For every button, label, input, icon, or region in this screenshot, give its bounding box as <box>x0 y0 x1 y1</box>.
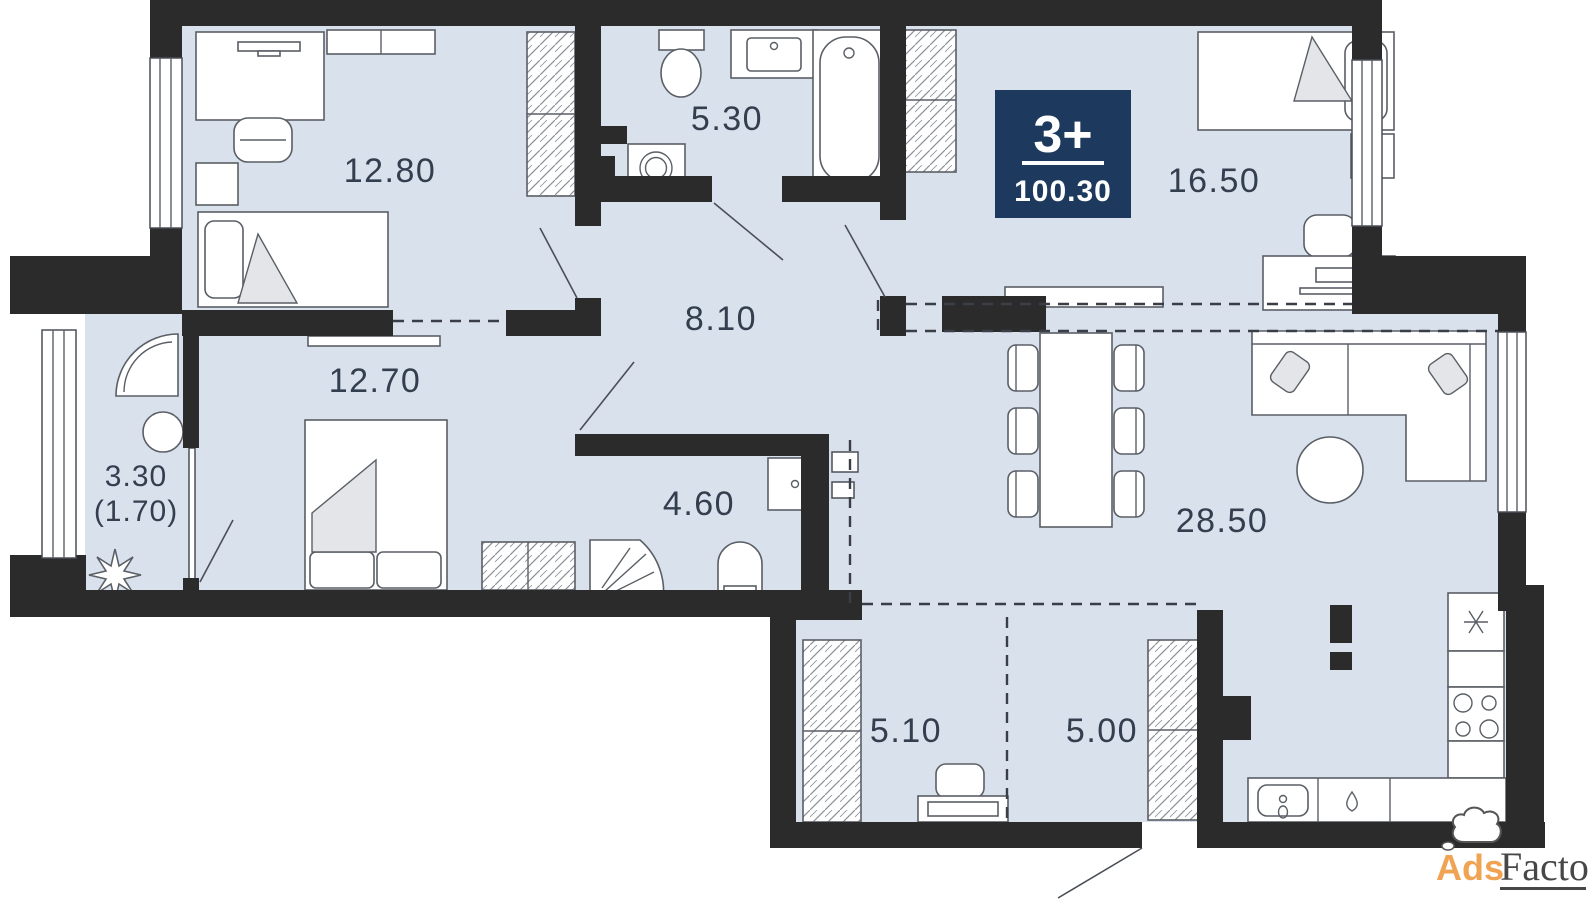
room-area-label: 3.30 <box>105 460 167 493</box>
shelf-icon <box>327 30 435 54</box>
kitchen-cabinet-icon <box>1448 651 1504 687</box>
wardrobe-icon <box>900 30 956 172</box>
nightstand-icon <box>196 163 238 205</box>
bathtub-icon <box>813 30 886 189</box>
room-area-label: 28.50 <box>1176 502 1269 540</box>
room-area-label: 4.60 <box>663 485 735 523</box>
kitchen-cabinet-icon <box>1448 741 1504 778</box>
cabinet-door-icon <box>768 458 802 510</box>
wardrobe-icon <box>482 542 575 590</box>
single-bed-icon <box>198 212 388 307</box>
wardrobe-icon <box>1148 640 1198 820</box>
stove-icon <box>1448 687 1504 741</box>
wardrobe-icon <box>803 640 861 822</box>
room-area-label: 12.80 <box>344 152 437 190</box>
sink-icon <box>731 30 817 78</box>
glass-door-icon <box>189 448 195 580</box>
room-area-label: 5.10 <box>870 712 942 750</box>
room-area-label: 8.10 <box>685 300 757 338</box>
dining-table-icon <box>1008 333 1144 527</box>
watermark-underline <box>1500 887 1586 890</box>
toilet-icon <box>659 30 704 97</box>
watermark-brand-right: Factory <box>1500 844 1589 889</box>
door-swing-line <box>1058 848 1142 898</box>
coffee-table-icon <box>1297 437 1363 503</box>
fridge-icon <box>1448 593 1504 651</box>
toilet-icon <box>718 542 762 598</box>
room-area-label: 16.50 <box>1168 162 1261 200</box>
window-icon <box>1352 60 1382 226</box>
badge-total-area: 100.30 <box>1014 175 1112 208</box>
room-area-label: 12.70 <box>329 362 422 400</box>
window-icon <box>42 330 76 558</box>
badge-rooms-count: 3+ <box>1033 106 1092 164</box>
wardrobe-icon <box>527 32 575 196</box>
badge-divider <box>1022 161 1104 165</box>
round-table-icon <box>143 412 183 452</box>
floor-plan-canvas: 12.80 5.30 16.50 8.10 12.70 3.30 (1.70) … <box>0 0 1589 900</box>
room-area-label: 5.30 <box>691 100 763 138</box>
window-icon <box>1498 332 1526 512</box>
floor-plan-svg: 12.80 5.30 16.50 8.10 12.70 3.30 (1.70) … <box>0 0 1589 900</box>
watermark-brand-left: Ads <box>1436 847 1504 888</box>
double-bed-icon <box>305 420 447 590</box>
window-icon <box>150 58 182 228</box>
area-badge: 3+ 100.30 <box>995 90 1131 218</box>
room-area-reduced-label: (1.70) <box>94 495 178 528</box>
dresser-icon <box>308 336 440 346</box>
room-area-label: 5.00 <box>1066 712 1138 750</box>
